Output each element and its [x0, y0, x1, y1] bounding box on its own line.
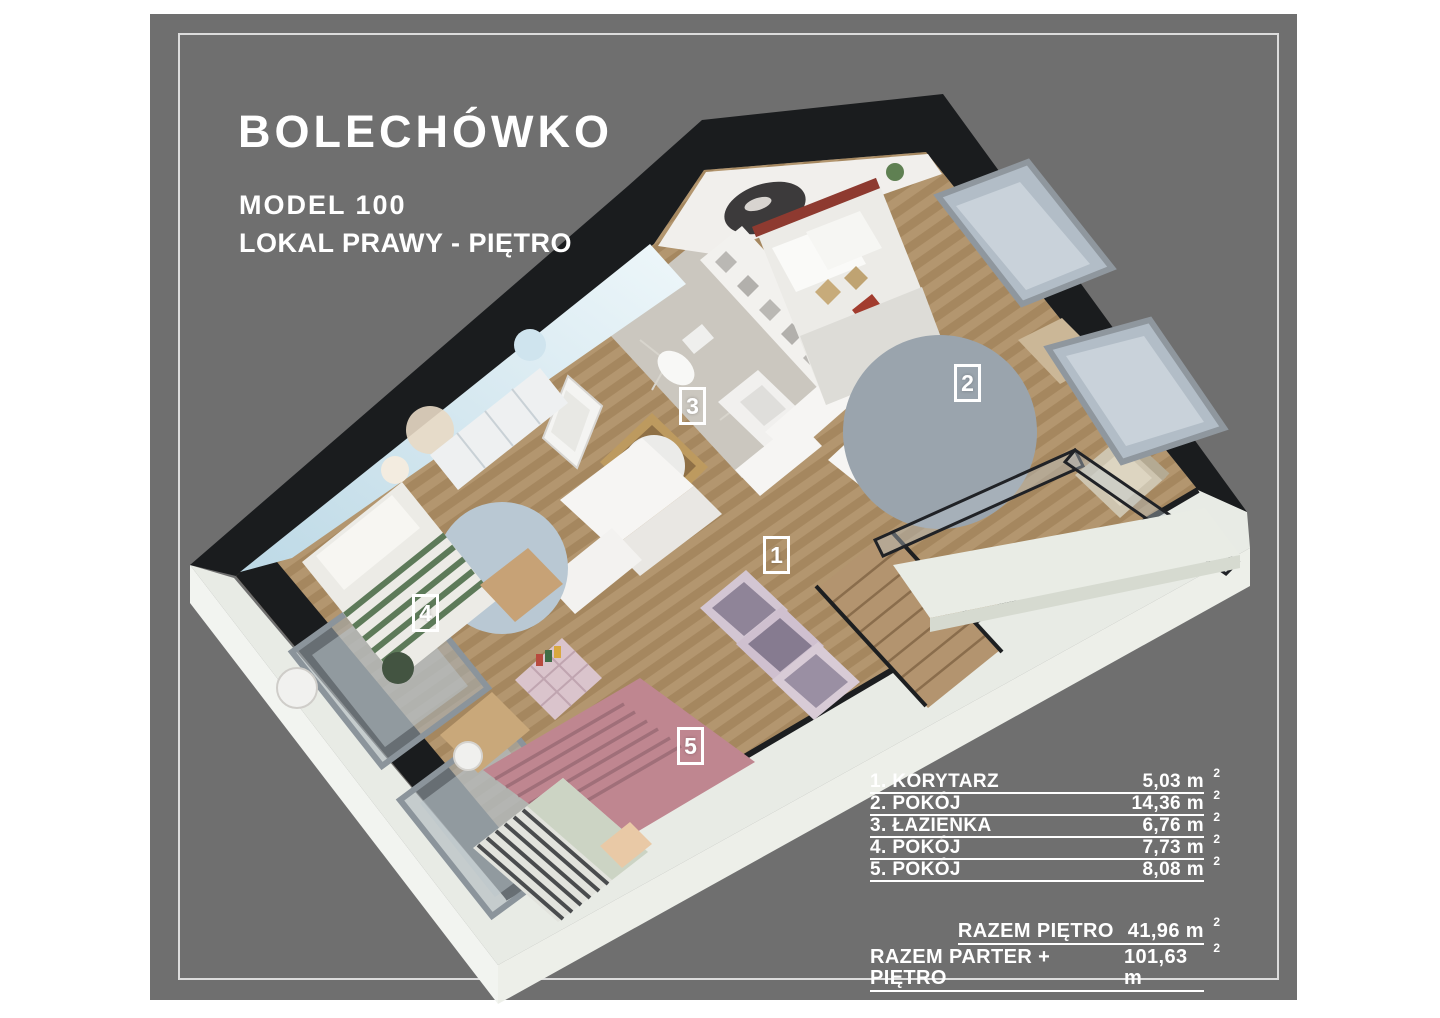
- room-area: 7,73 m: [1142, 838, 1204, 857]
- room-label-4: 4: [412, 594, 439, 632]
- room-label-2: 2: [954, 364, 981, 402]
- room-name: 1. KORYTARZ: [870, 772, 999, 791]
- room-area: 14,36 m: [1131, 794, 1204, 813]
- total-value: 41,96 m: [1128, 921, 1204, 942]
- chair: [382, 652, 414, 684]
- legend-row: 3. ŁAZIENKA 6,76 m 2: [870, 816, 1222, 838]
- square-meter-sup: 2: [1213, 810, 1220, 824]
- square-meter-sup: 2: [1213, 854, 1220, 868]
- floor-plan-rendering: [0, 0, 1440, 1018]
- total-building-row: RAZEM PARTER + PIĘTRO 101,63 m 2: [870, 947, 1222, 992]
- total-floor-row: RAZEM PIĘTRO 41,96 m 2: [958, 921, 1222, 945]
- room-name: 2. POKÓJ: [870, 794, 961, 813]
- room-area: 6,76 m: [1142, 816, 1204, 835]
- room-name: 5. POKÓJ: [870, 860, 961, 879]
- plant: [886, 163, 904, 181]
- legend-row: 5. POKÓJ 8,08 m 2: [870, 860, 1222, 882]
- room-name: 3. ŁAZIENKA: [870, 816, 992, 835]
- area-totals: RAZEM PIĘTRO 41,96 m 2 RAZEM PARTER + PI…: [870, 921, 1222, 994]
- room-name: 4. POKÓJ: [870, 838, 961, 857]
- room-area-legend: 1. KORYTARZ 5,03 m 2 2. POKÓJ 14,36 m 2 …: [870, 772, 1222, 882]
- legend-row: 2. POKÓJ 14,36 m 2: [870, 794, 1222, 816]
- square-meter-sup: 2: [1213, 941, 1220, 955]
- room-label-5: 5: [677, 727, 704, 765]
- total-label: RAZEM PIĘTRO: [958, 921, 1114, 942]
- square-meter-sup: 2: [1213, 788, 1220, 802]
- square-meter-sup: 2: [1213, 766, 1220, 780]
- room-area: 5,03 m: [1142, 772, 1204, 791]
- total-label: RAZEM PARTER + PIĘTRO: [870, 947, 1110, 989]
- room-area: 8,08 m: [1142, 860, 1204, 879]
- model-subtitle: MODEL 100: [239, 190, 407, 221]
- total-value: 101,63 m: [1124, 947, 1204, 989]
- room-label-1: 1: [763, 536, 790, 574]
- legend-row: 4. POKÓJ 7,73 m 2: [870, 838, 1222, 860]
- legend-row: 1. KORYTARZ 5,03 m 2: [870, 772, 1222, 794]
- room-label-3: 3: [679, 387, 706, 425]
- page-title: BOLECHÓWKO: [238, 106, 613, 158]
- square-meter-sup: 2: [1213, 832, 1220, 846]
- chair: [454, 742, 482, 770]
- square-meter-sup: 2: [1213, 915, 1220, 929]
- round-table: [277, 668, 317, 708]
- unit-subtitle: LOKAL PRAWY - PIĘTRO: [239, 228, 572, 259]
